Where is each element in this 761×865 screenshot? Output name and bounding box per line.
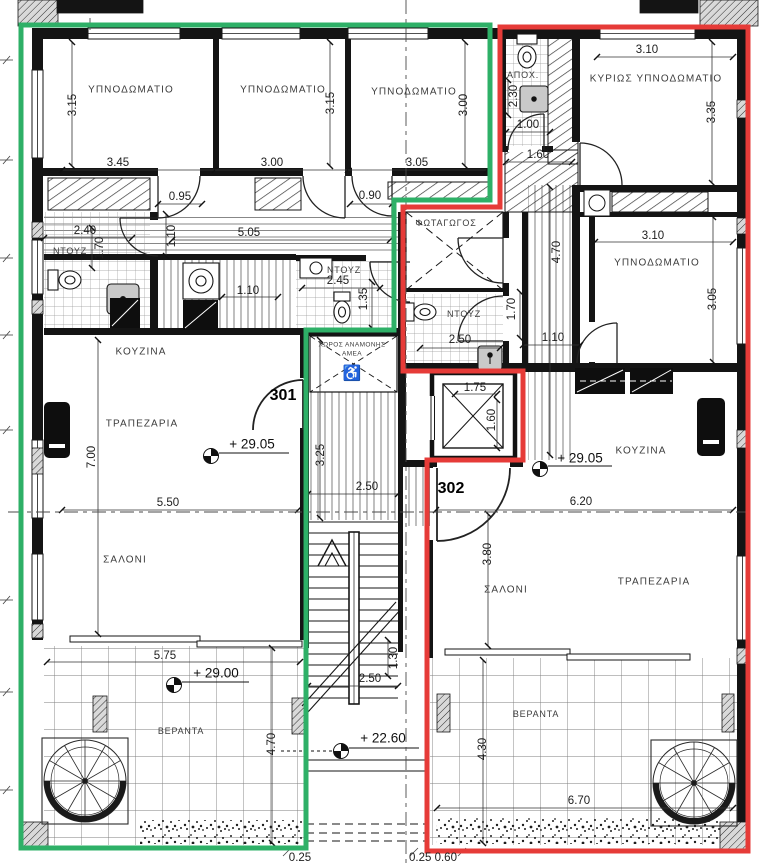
- room-label-master-bedroom: ΚΥΡΙΩΣ ΥΠΝΟΔΩΜΑΤΙΟ: [590, 74, 723, 85]
- dim-2-40: 2.40: [74, 225, 96, 237]
- room-label-kitchen-301: ΚΟΥΖΙΝΑ: [116, 347, 167, 358]
- room-label-bedroom-1: ΥΠΝΟΔΩΜΑΤΙΟ: [88, 85, 174, 96]
- dim-0-25-0-60: 0.25 0.60: [409, 852, 457, 864]
- dim-1-10b: 1.10: [237, 285, 259, 297]
- dim-3-15a: 3.15: [67, 94, 79, 116]
- dim-1-75: 1.75: [464, 382, 486, 394]
- dim-3-80: 3.80: [482, 543, 494, 565]
- room-label-bedroom-302: ΥΠΝΟΔΩΜΑΤΙΟ: [614, 258, 700, 269]
- dim-2-45: 2.45: [327, 275, 349, 287]
- room-label-lightwell: ΦΩΤΑΓΩΓΟΣ: [415, 218, 476, 228]
- room-label-living-301: ΣΑΛΟΝΙ: [103, 555, 147, 566]
- dim-1-10a: 1.10: [166, 225, 178, 247]
- room-label-bedroom-2: ΥΠΝΟΔΩΜΑΤΙΟ: [240, 85, 326, 96]
- dim-2-50a: 2.50: [449, 334, 471, 346]
- dim-1-10c: 1.10: [542, 332, 564, 344]
- dim-3-35: 3.35: [706, 101, 718, 123]
- dim-4-70a: 4.70: [551, 241, 563, 263]
- room-label-shower-301: ΝΤΟΥΖ: [53, 246, 87, 256]
- room-label-veranda-301: ΒΕΡΑΝΤΑ: [158, 726, 204, 736]
- dim-6-20: 6.20: [570, 496, 592, 508]
- room-label-shower-301b: ΝΤΟΥΖ: [327, 265, 361, 275]
- dim-1-70a: 1.70: [94, 237, 106, 259]
- room-label-bedroom-3: ΥΠΝΟΔΩΜΑΤΙΟ: [371, 87, 457, 98]
- room-label-veranda-302: ΒΕΡΑΝΤΑ: [513, 709, 559, 719]
- dim-5-75: 5.75: [154, 650, 176, 662]
- dim-3-05a: 3.05: [406, 157, 428, 169]
- level-mark-302: + 29.05: [557, 451, 602, 466]
- unit-number-302: 302: [438, 480, 465, 498]
- room-label-living-302: ΣΑΛΟΝΙ: [484, 585, 528, 596]
- floor-plan: ΥΠΝΟΔΩΜΑΤΙΟΥΠΝΟΔΩΜΑΤΙΟΥΠΝΟΔΩΜΑΤΙΟΚΥΡΙΩΣ …: [0, 0, 761, 865]
- room-label-shower-302: ΝΤΟΥΖ: [447, 309, 481, 319]
- dim-1-70b: 1.70: [506, 298, 518, 320]
- unit-number-301: 301: [270, 387, 297, 405]
- dim-5-05: 5.05: [238, 227, 260, 239]
- dim-3-45: 3.45: [107, 157, 129, 169]
- dim-3-05b: 3.05: [707, 288, 719, 310]
- amea-waiting-label-2: ΑΜΕΑ: [342, 351, 362, 358]
- dim-3-10b: 3.10: [642, 230, 664, 242]
- wheelchair-icon: ♿: [343, 364, 362, 382]
- dim-3-15b: 3.15: [325, 92, 337, 114]
- dim-6-70: 6.70: [568, 795, 590, 807]
- dim-3-10a: 3.10: [636, 44, 658, 56]
- room-label-dining-301: ΤΡΑΠΕΖΑΡΙΑ: [106, 419, 179, 430]
- room-label-wc: ΑΠΟΧ.: [507, 70, 539, 80]
- dim-4-30: 4.30: [477, 738, 489, 760]
- dim-3-00a: 3.00: [261, 157, 283, 169]
- room-label-kitchen-302: ΚΟΥΖΙΝΑ: [616, 446, 667, 457]
- dim-2-50b: 2.50: [356, 481, 378, 493]
- dim-0-95: 0.95: [169, 191, 191, 203]
- amea-waiting-label-1: ΧΩΡΟΣ ΑΝΑΜΟΝΗΣ: [319, 342, 386, 349]
- dim-0-25a: 0.25: [289, 852, 311, 864]
- dim-2-50c: 2.50: [359, 673, 381, 685]
- level-mark-301: + 29.05: [229, 437, 274, 452]
- level-mark-stairs: + 22.60: [360, 731, 405, 746]
- dim-1-30: 1.30: [388, 647, 400, 669]
- dim-1-35: 1.35: [358, 288, 370, 310]
- dim-1-60a: 1.60: [527, 149, 549, 161]
- dim-0-90: 0.90: [359, 190, 381, 202]
- dim-3-00b: 3.00: [458, 94, 470, 116]
- dim-7-00: 7.00: [86, 446, 98, 468]
- dim-1-60b: 1.60: [486, 409, 498, 431]
- dim-4-70b: 4.70: [266, 733, 278, 755]
- labels-layer: ΥΠΝΟΔΩΜΑΤΙΟΥΠΝΟΔΩΜΑΤΙΟΥΠΝΟΔΩΜΑΤΙΟΚΥΡΙΩΣ …: [0, 0, 761, 865]
- level-mark-veranda: + 29.00: [193, 666, 238, 681]
- dim-3-25: 3.25: [315, 444, 327, 466]
- dim-1-00: 1.00: [517, 119, 539, 131]
- dim-2-30: 2.30: [508, 85, 520, 107]
- dim-5-50: 5.50: [157, 497, 179, 509]
- room-label-dining-302: ΤΡΑΠΕΖΑΡΙΑ: [618, 577, 691, 588]
